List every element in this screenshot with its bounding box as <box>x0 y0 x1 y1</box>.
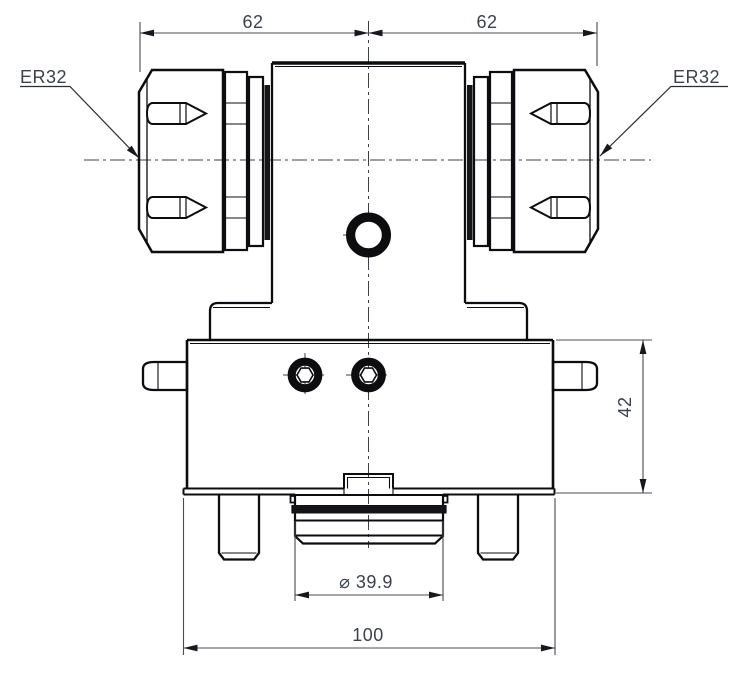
foot-right <box>478 495 518 560</box>
arrowhead-down-icon <box>640 479 647 493</box>
raised-block-left <box>210 303 272 340</box>
arrowhead-left-icon <box>295 592 309 599</box>
wrench-slot-bottom <box>147 197 206 218</box>
foot-left <box>219 495 259 560</box>
label-er32-right: ER32 <box>598 67 728 158</box>
collet-ring-b <box>249 77 263 246</box>
arrowhead-left-icon <box>184 645 198 652</box>
arrowhead-left-icon <box>140 30 154 37</box>
label-er32-left: ER32 <box>20 67 141 160</box>
collet-spacer <box>265 85 271 240</box>
centerlines <box>84 21 651 548</box>
dimension-text: ⌀ 39.9 <box>339 572 393 592</box>
collet-ring-a <box>225 72 247 250</box>
collet-assembly-right <box>467 70 598 252</box>
dimension-62-right: 62 <box>369 12 598 66</box>
dimension-boss-diameter: ⌀ 39.9 <box>295 521 443 601</box>
arrowhead-left-icon <box>369 30 383 37</box>
hex-socket <box>361 368 377 382</box>
dimension-text: 100 <box>352 625 384 645</box>
center-hole-inner <box>355 221 383 249</box>
wrench-slot-top-lines <box>180 103 186 124</box>
dimension-text: 62 <box>242 12 263 32</box>
raised-block-right <box>465 303 527 340</box>
leader-line <box>600 87 728 157</box>
arrowhead-right-icon <box>541 645 555 652</box>
label-text: ER32 <box>673 67 720 87</box>
boss-groove-band <box>293 505 446 514</box>
drawing-canvas: 62 62 42 ⌀ 39.9 100 ER32 ER32 <box>0 0 733 673</box>
wrench-slot-bottom-lines <box>180 197 186 218</box>
wrench-slot-top <box>147 103 206 124</box>
hex-screw-right <box>352 358 386 392</box>
leader-line <box>20 87 139 159</box>
dimension-text: 62 <box>476 12 497 32</box>
arrowhead-right-icon <box>355 30 369 37</box>
center-hole <box>347 213 391 257</box>
technical-drawing: 62 62 42 ⌀ 39.9 100 ER32 ER32 <box>0 0 733 673</box>
dimension-text: 42 <box>615 396 635 417</box>
arrowhead-up-icon <box>640 340 647 354</box>
label-text: ER32 <box>20 67 67 87</box>
hex-screw-left <box>288 358 322 392</box>
side-pin-left <box>143 362 187 390</box>
collet-assembly-left <box>139 70 270 252</box>
arrowhead-right-icon <box>583 30 597 37</box>
collet-nut <box>139 70 223 252</box>
side-pin-right <box>553 362 597 390</box>
hex-socket <box>297 368 313 382</box>
arrowhead-right-icon <box>429 592 443 599</box>
